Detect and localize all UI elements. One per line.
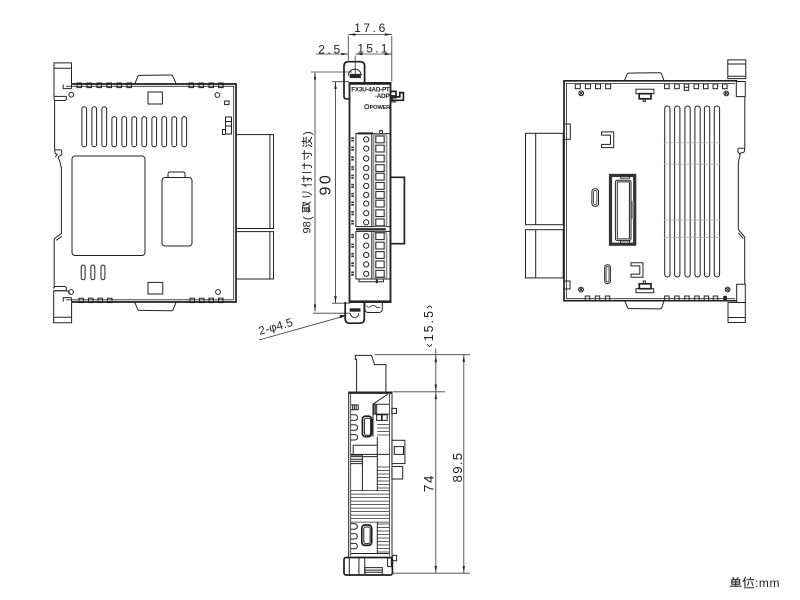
svg-text:17.6: 17.6	[354, 21, 388, 35]
svg-text::mm: :mm	[755, 576, 780, 590]
svg-text:89.5: 89.5	[450, 452, 465, 483]
svg-text:-ADP: -ADP	[375, 93, 390, 100]
svg-text:POWER: POWER	[370, 105, 392, 111]
svg-text:74: 74	[421, 474, 436, 492]
svg-text:(: (	[302, 216, 314, 220]
svg-text:90: 90	[318, 173, 335, 196]
svg-text:‹15.5›: ‹15.5›	[422, 303, 436, 348]
svg-text:): )	[302, 131, 314, 135]
svg-text:98: 98	[302, 221, 314, 233]
